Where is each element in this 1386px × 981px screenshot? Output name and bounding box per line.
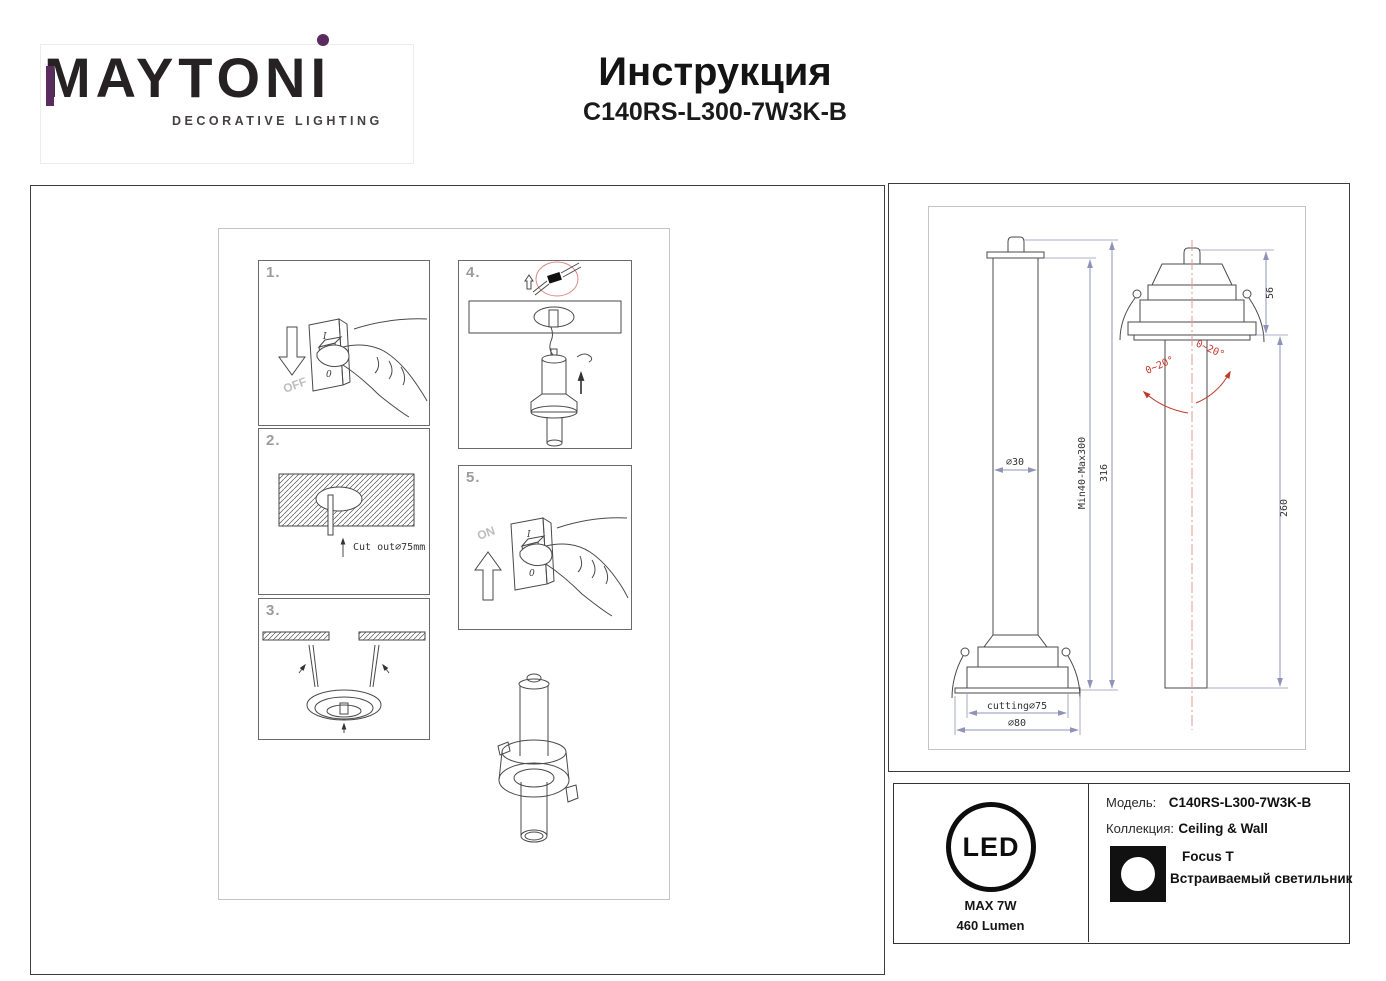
step-1-box: 1. OFF I 0: [258, 260, 430, 426]
hook-icon: [577, 354, 592, 362]
ring-clip-tab: [566, 785, 578, 802]
saw-tool: [328, 495, 333, 535]
page-model-code: C140RS-L300-7W3K-B: [480, 98, 950, 127]
spec-table-divider: [1088, 783, 1089, 942]
dim-flange-diameter: ∅80: [1008, 718, 1026, 729]
model-row: Модель: C140RS-L300-7W3K-B: [1106, 794, 1311, 812]
brand-tagline: DECORATIVE LIGHTING: [172, 114, 383, 128]
model-value: C140RS-L300-7W3K-B: [1169, 795, 1312, 810]
step-5-arrow-text: ON: [475, 524, 497, 543]
dim-cutout: cutting∅75: [987, 701, 1047, 712]
off-arrow-icon: [279, 327, 305, 375]
product-thumbnail-icon: [1110, 846, 1166, 902]
hand-illustration: [520, 518, 628, 616]
collection-value: Ceiling & Wall: [1178, 821, 1268, 836]
step-5-illustration: ON I 0: [459, 466, 631, 629]
mounting-ring: [307, 690, 381, 720]
brand-dot-icon: [317, 34, 329, 46]
dim-adjustable-height: Min40-Max300: [1077, 437, 1088, 509]
tilt-angle-right: 0~20°: [1194, 339, 1226, 361]
step-3-illustration: [259, 599, 429, 739]
step-1-illustration: OFF I 0: [259, 261, 429, 425]
brand-logo: MAYTONI: [44, 50, 331, 106]
product-type: Встраиваемый светильник: [1170, 871, 1352, 886]
dim-total-height: 316: [1099, 464, 1110, 482]
step-2-box: 2. Cut out∅75mm: [258, 428, 430, 595]
step-2-illustration: Cut out∅75mm: [259, 429, 429, 594]
model-label: Модель:: [1106, 795, 1156, 810]
switch-off-mark: 0: [326, 370, 332, 380]
spotlight-hole-icon: [1121, 857, 1155, 891]
collection-row: Коллекция: Ceiling & Wall: [1106, 820, 1268, 838]
led-badge-text: LED: [963, 832, 1020, 863]
hand-illustration: [317, 319, 427, 417]
switch-off-mark: 0: [529, 569, 535, 579]
ring-clip-tab: [498, 742, 510, 755]
step-3-box: 3.: [258, 598, 430, 740]
brand-last-letter: I: [311, 46, 332, 109]
step-4-illustration: [459, 261, 631, 448]
dim-tube-length: 260: [1279, 499, 1290, 517]
ceiling-edges: [263, 632, 425, 640]
brand-text: MAYTON: [44, 46, 311, 109]
dim-tube-diameter: ∅30: [1006, 457, 1024, 468]
series-name: Focus T: [1182, 849, 1234, 864]
front-view-dimensions: ∅30 Min40-Max300 316 cutting∅75 ∅80: [955, 240, 1118, 735]
on-arrow-icon: [475, 552, 501, 600]
dim-recess-depth: 56: [1265, 287, 1276, 299]
ceiling-section: [469, 301, 621, 355]
page-title: Инструкция: [480, 50, 950, 94]
assembled-product-illustration: [462, 652, 618, 862]
ceiling-cutout-illustration: [279, 474, 414, 535]
light-tube: [531, 355, 577, 446]
technical-drawing: ∅30 Min40-Max300 316 cutting∅75 ∅80: [928, 206, 1304, 748]
collection-label: Коллекция:: [1106, 821, 1174, 836]
side-view-annotations: 0~20° 0~20° 56 260: [1144, 240, 1290, 730]
switch-on-mark: I: [526, 530, 531, 540]
step-5-box: 5. ON I 0: [458, 465, 632, 630]
small-up-arrow-icon: [525, 275, 533, 289]
step-4-box: 4.: [458, 260, 632, 449]
lumen-label: 460 Lumen: [893, 918, 1088, 933]
cutout-dimension-text: Cut out∅75mm: [353, 542, 425, 553]
instruction-sheet: MAYTONI DECORATIVE LIGHTING Инструкция C…: [0, 0, 1386, 981]
spring-clips: [299, 645, 389, 687]
max-power-label: MAX 7W: [893, 898, 1088, 913]
brand-accent-bar: [46, 66, 54, 106]
led-badge: LED: [946, 802, 1036, 892]
title-block: Инструкция C140RS-L300-7W3K-B: [480, 50, 950, 127]
tilt-angle-left: 0~20°: [1144, 355, 1176, 377]
step-1-arrow-text: OFF: [281, 374, 308, 395]
switch-on-mark: I: [322, 332, 327, 342]
